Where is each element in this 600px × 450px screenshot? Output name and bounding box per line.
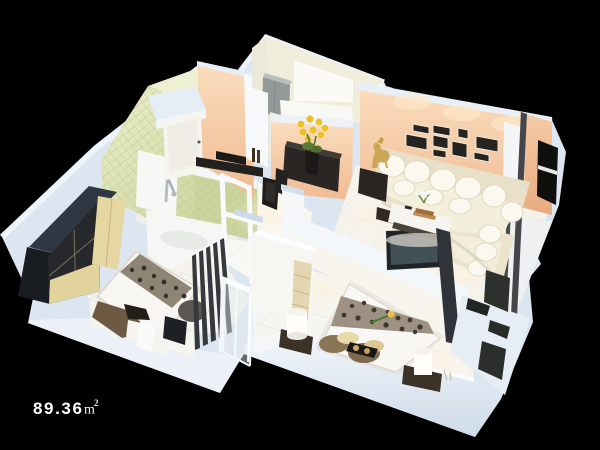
svg-text:2: 2 [94, 398, 99, 408]
svg-text:89.36: 89.36 [33, 399, 84, 418]
